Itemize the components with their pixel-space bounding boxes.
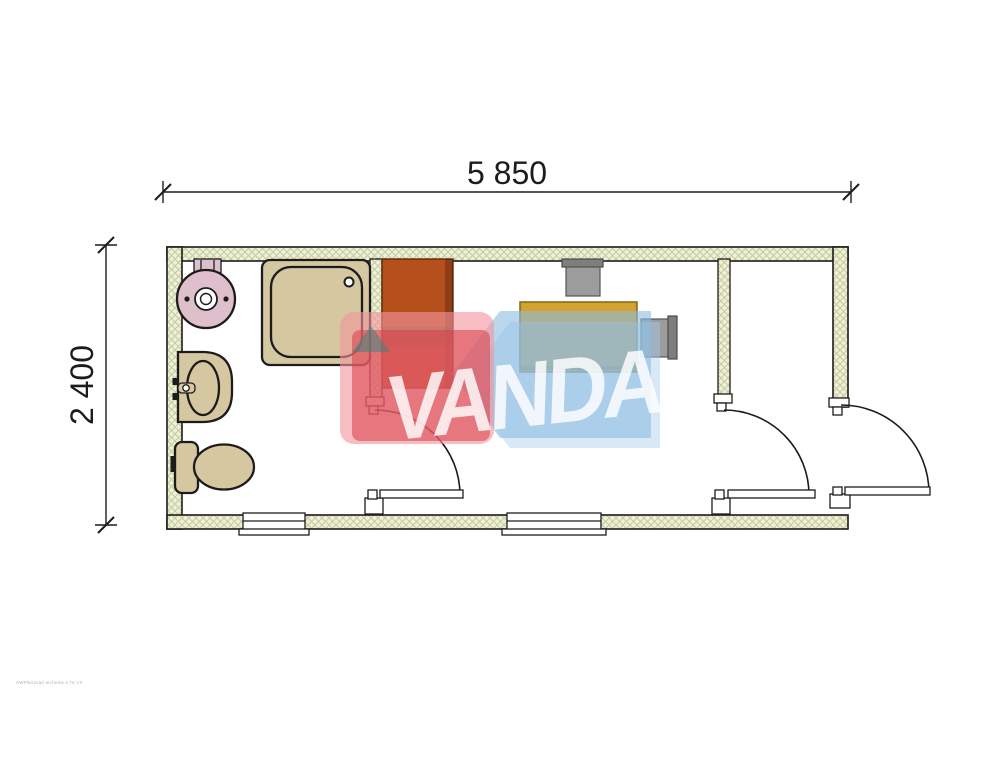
water-heater-dot — [184, 296, 189, 301]
chair-top — [562, 259, 603, 296]
door-jamb — [833, 407, 842, 415]
door-leaf — [728, 490, 815, 498]
shower-drain — [345, 278, 354, 287]
toilet-bowl — [194, 445, 254, 490]
wall-right — [833, 247, 848, 407]
washbasin — [173, 352, 233, 422]
chair-backrest — [668, 316, 677, 359]
window-sill — [239, 529, 309, 535]
height-dimension-label: 2 400 — [64, 345, 100, 425]
door-hinge-post — [712, 498, 730, 514]
illegible-microtext: SWPlan2cad technika 4.76 VX — [16, 680, 83, 685]
window-left — [239, 513, 309, 535]
floor-plan-page: 5 850 2 400 — [0, 0, 1000, 757]
dimension-left: 2 400 — [64, 237, 117, 533]
door-jamb — [714, 394, 732, 403]
pipe-connector — [173, 378, 178, 385]
door-hinge-post — [365, 498, 383, 514]
water-heater-port-inner — [201, 294, 212, 305]
width-dimension-label: 5 850 — [467, 155, 547, 191]
toilet — [171, 442, 255, 493]
door-hinge-post — [715, 490, 724, 499]
window-sill — [502, 529, 606, 535]
water-heater-dot — [223, 296, 228, 301]
chair-backrest — [562, 259, 603, 267]
watermark-logo: VANDA — [340, 311, 665, 461]
partition-vestibule — [718, 259, 730, 396]
door-leaf — [845, 487, 930, 495]
door-hinge-post — [368, 490, 377, 499]
door-hinge-post — [833, 487, 842, 495]
door-leaf — [380, 490, 463, 498]
dimension-top: 5 850 — [155, 155, 859, 203]
door-hinge-post — [830, 494, 850, 508]
chair-seat — [566, 267, 600, 296]
floor-plan-canvas: 5 850 2 400 — [0, 0, 1000, 757]
pipe-connector — [173, 393, 178, 400]
tap-knob — [183, 385, 189, 391]
door-swing-arc — [841, 405, 929, 493]
window-right — [502, 513, 606, 535]
